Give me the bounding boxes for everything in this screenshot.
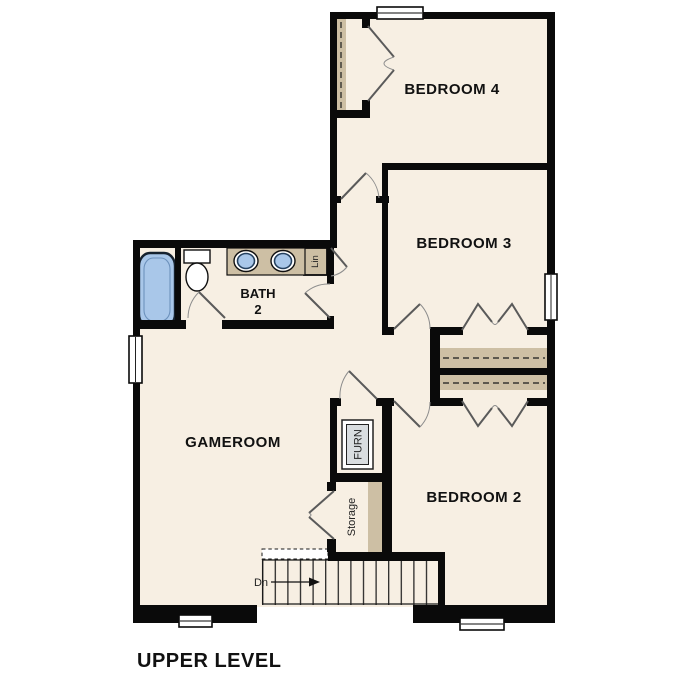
wall-bedroom3-west xyxy=(382,163,388,335)
wall-furnace-storage xyxy=(335,473,383,482)
label-gameroom: GAMEROOM xyxy=(185,434,281,451)
wall-bath-south-a xyxy=(133,320,186,329)
wall-top xyxy=(330,12,555,19)
floorplan-drawing: BEDROOM 4 BEDROOM 3 BEDROOM 2 GAMEROOM B… xyxy=(0,0,687,687)
label-furnace: FURN xyxy=(352,429,364,460)
wall-furnace-west xyxy=(330,398,337,482)
label-bath-line1: BATH xyxy=(240,286,275,301)
wall-bedroom3-north xyxy=(382,163,553,170)
wall-stairs-top xyxy=(328,552,445,561)
label-bedroom3: BEDROOM 3 xyxy=(416,235,511,252)
wall-left-upper xyxy=(330,12,337,248)
label-bedroom4: BEDROOM 4 xyxy=(404,81,500,98)
wall-left xyxy=(133,240,140,623)
page-title: UPPER LEVEL xyxy=(137,650,281,672)
sink-left-basin xyxy=(238,254,255,269)
sink-right-basin xyxy=(275,254,292,269)
wall-closet-divider xyxy=(440,368,547,375)
label-bedroom2: BEDROOM 2 xyxy=(426,489,521,506)
wall-bath-south-b xyxy=(222,320,333,329)
wall-closet-west xyxy=(430,335,440,405)
toilet-bowl xyxy=(186,263,208,291)
stair-rail xyxy=(262,549,328,559)
wall-bedroom2-west xyxy=(382,398,392,555)
wall-bath-top xyxy=(133,240,337,248)
label-bath-line2: 2 xyxy=(254,302,261,317)
storage-chase xyxy=(368,478,382,554)
bedroom4-bedroom3-floor xyxy=(335,17,549,336)
label-linen: Lin xyxy=(310,255,321,268)
label-storage: Storage xyxy=(346,498,358,537)
label-stairs-down: Dn xyxy=(254,577,268,589)
floorplan-page: BEDROOM 4 BEDROOM 3 BEDROOM 2 GAMEROOM B… xyxy=(0,0,687,687)
wall-bedroom4-closet xyxy=(330,110,370,118)
wall-tub-partition xyxy=(175,248,181,327)
wall-stairs-east xyxy=(438,556,445,606)
toilet-tank xyxy=(184,250,210,263)
